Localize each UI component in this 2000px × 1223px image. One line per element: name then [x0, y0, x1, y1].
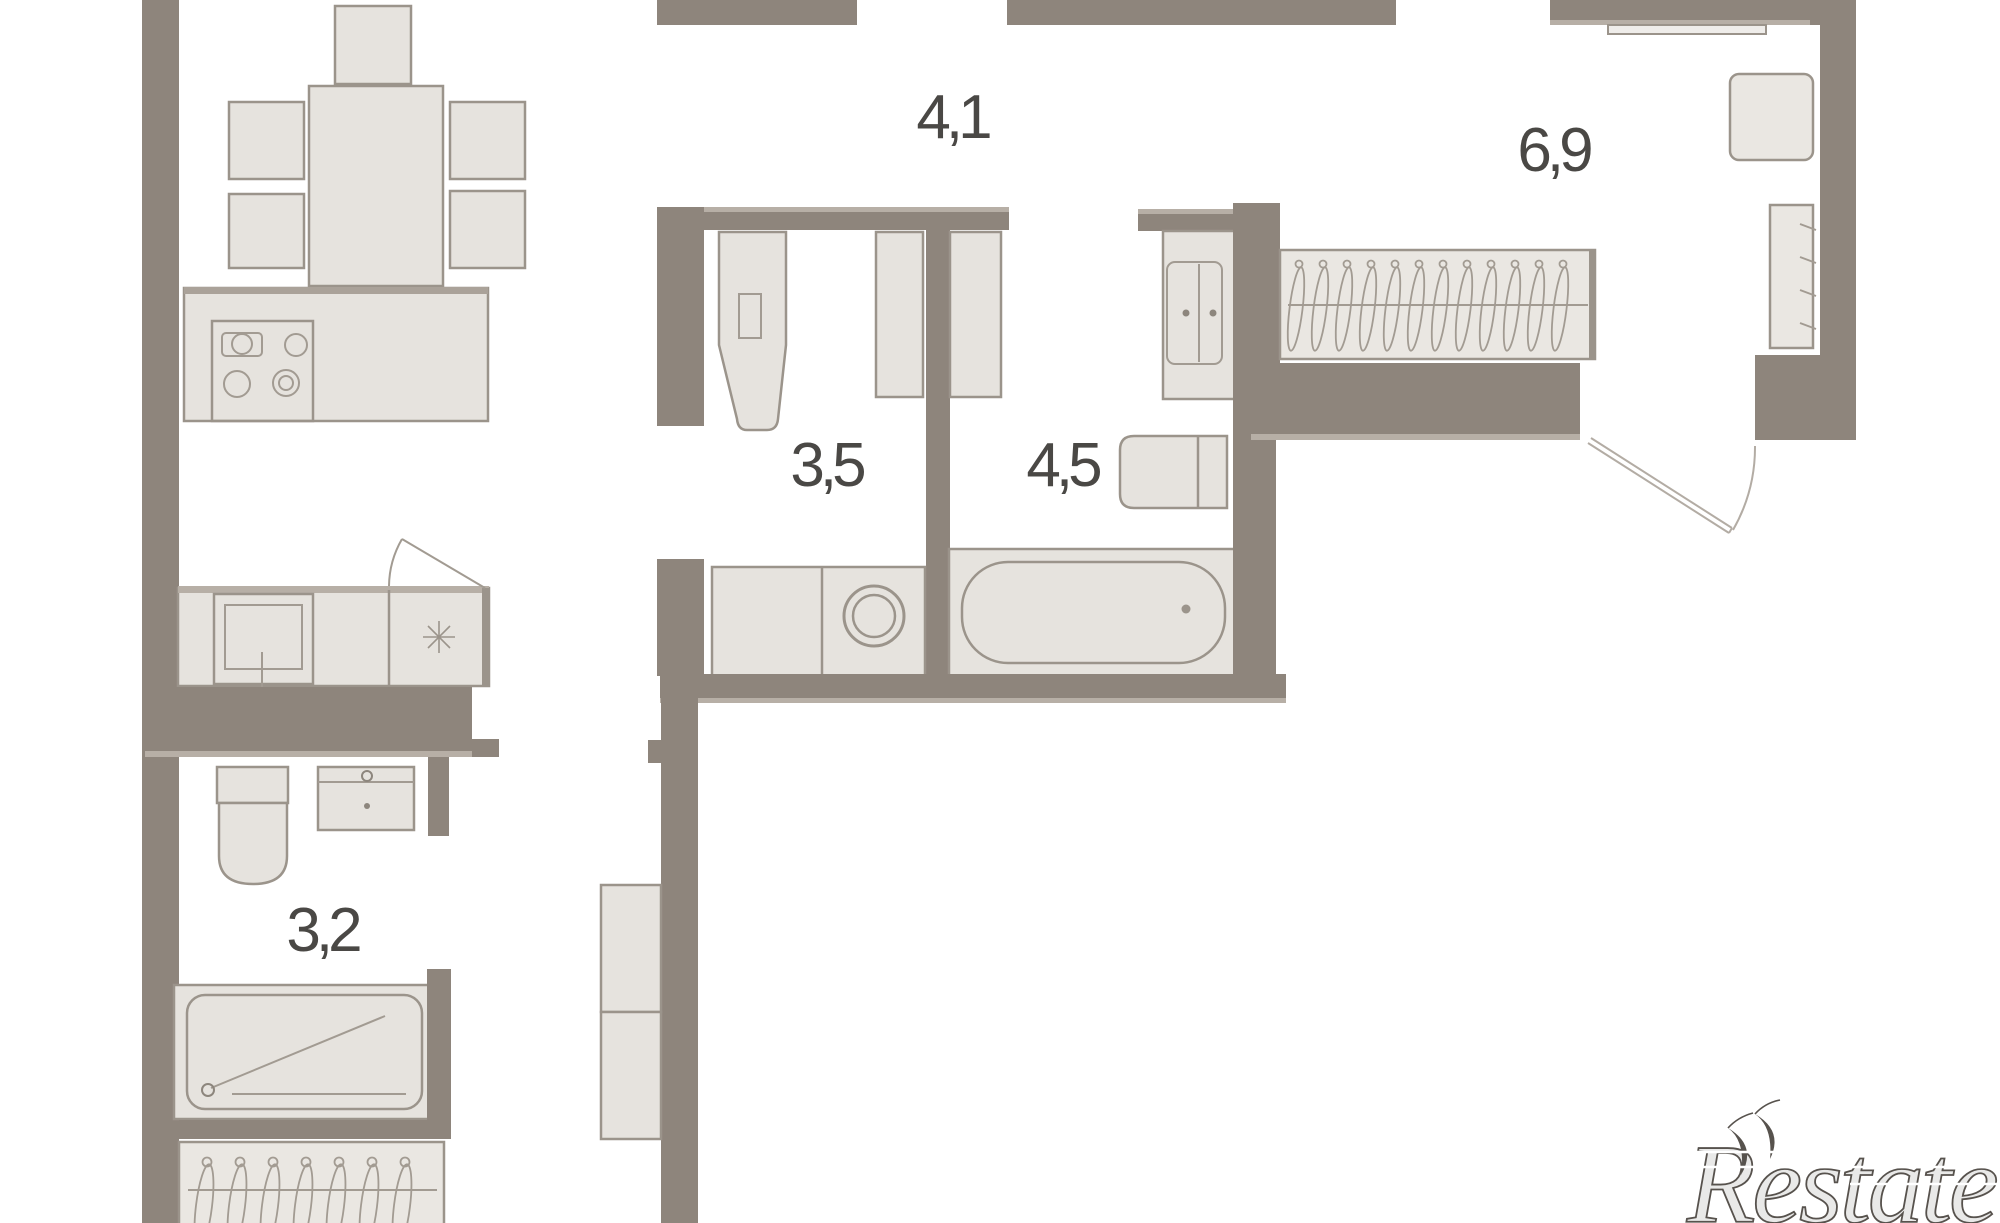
svg-text:6,9: 6,9	[1517, 116, 1591, 185]
svg-text:Restate: Restate	[1686, 1123, 1997, 1223]
svg-text:3,2: 3,2	[286, 896, 360, 965]
svg-text:3,5: 3,5	[790, 431, 864, 500]
svg-text:4,1: 4,1	[916, 83, 990, 152]
svg-text:4,5: 4,5	[1026, 431, 1100, 500]
